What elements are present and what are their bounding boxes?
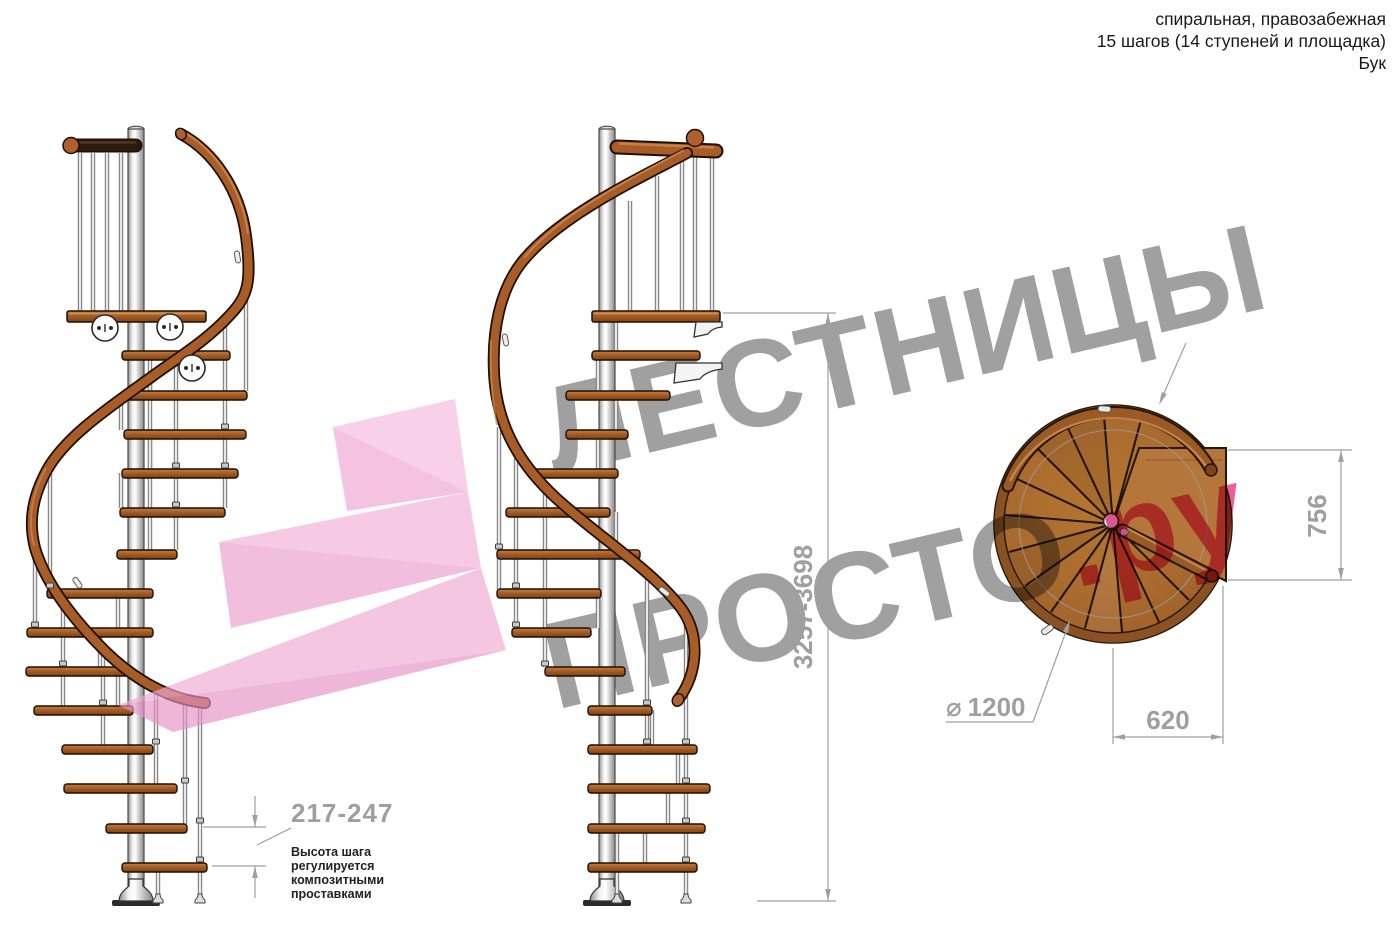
note-line: композитными: [291, 873, 384, 887]
landing-depth-label: 756: [1302, 494, 1332, 537]
title-line-material: Бук: [1097, 52, 1386, 74]
leader-arrow: [1063, 620, 1070, 633]
spiral-handrail: [491, 150, 695, 708]
dimension-total-height: 3257-3698: [723, 313, 836, 901]
landing-platform: [67, 311, 206, 322]
diameter-symbol: ⌀: [946, 692, 962, 722]
step-pitch-note: Высота шага регулируется композитными пр…: [291, 845, 384, 901]
plan-handrail-leader: [1159, 343, 1186, 405]
note-line: Высота шага: [291, 845, 372, 859]
note-line: проставками: [291, 887, 372, 901]
title-block: спиральная, правозабежная 15 шагов (14 с…: [1097, 8, 1386, 74]
rail-sleeve: [234, 251, 241, 264]
step-pitch-label: 217-247: [291, 798, 393, 828]
note-line: регулируется: [291, 859, 374, 873]
landing-width-label: 620: [1146, 705, 1189, 735]
rail-sleeve: [502, 334, 509, 347]
baluster-feet: [153, 894, 205, 903]
diameter-value: 1200: [968, 692, 1026, 722]
right-staircase-side-view: [491, 126, 722, 906]
title-line-steps: 15 шагов (14 ступеней и площадка): [1097, 30, 1386, 52]
landing-handrail: [63, 138, 142, 154]
handrail-knob: [687, 130, 704, 147]
side-views-and-dimensions: 3257-3698 217-247 Высота шага регулирует…: [0, 0, 1400, 951]
title-line-type: спиральная, правозабежная: [1097, 8, 1386, 30]
handrail-end-cap: [63, 138, 79, 154]
left-staircase-side-view: [26, 126, 249, 906]
diameter-label: ⌀1200: [946, 692, 1026, 722]
dimension-landing-depth: 756: [1228, 450, 1352, 580]
arrow-down: [252, 815, 258, 827]
leader-arrow: [1159, 392, 1167, 405]
dimension-diameter: ⌀1200: [946, 620, 1070, 722]
landing-platform: [592, 311, 720, 322]
rail-sleeve: [72, 576, 83, 589]
drawing-sheet: ЛЕСТНИЦЫ ПРОСТО.ру: [0, 0, 1400, 951]
total-height-label: 3257-3698: [788, 545, 818, 669]
landing-handrail: [617, 130, 716, 152]
dimension-step-pitch: 217-247 Высота шага регулируется компози…: [203, 796, 393, 901]
dimension-landing-width: 620: [1113, 586, 1223, 744]
base-flange: [583, 879, 631, 906]
arrow-up: [252, 866, 258, 878]
